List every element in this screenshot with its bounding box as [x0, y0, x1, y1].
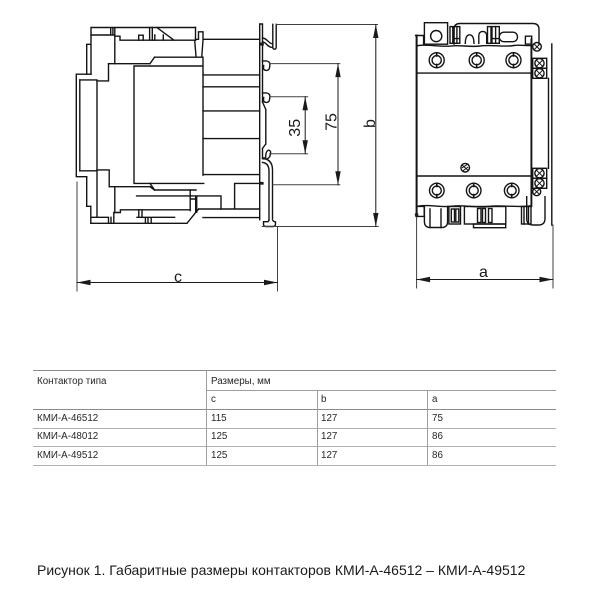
svg-text:c: c [174, 269, 182, 286]
svg-text:35: 35 [287, 119, 304, 137]
svg-text:75: 75 [324, 113, 341, 131]
svg-text:a: a [479, 264, 488, 281]
svg-text:b: b [362, 119, 379, 128]
